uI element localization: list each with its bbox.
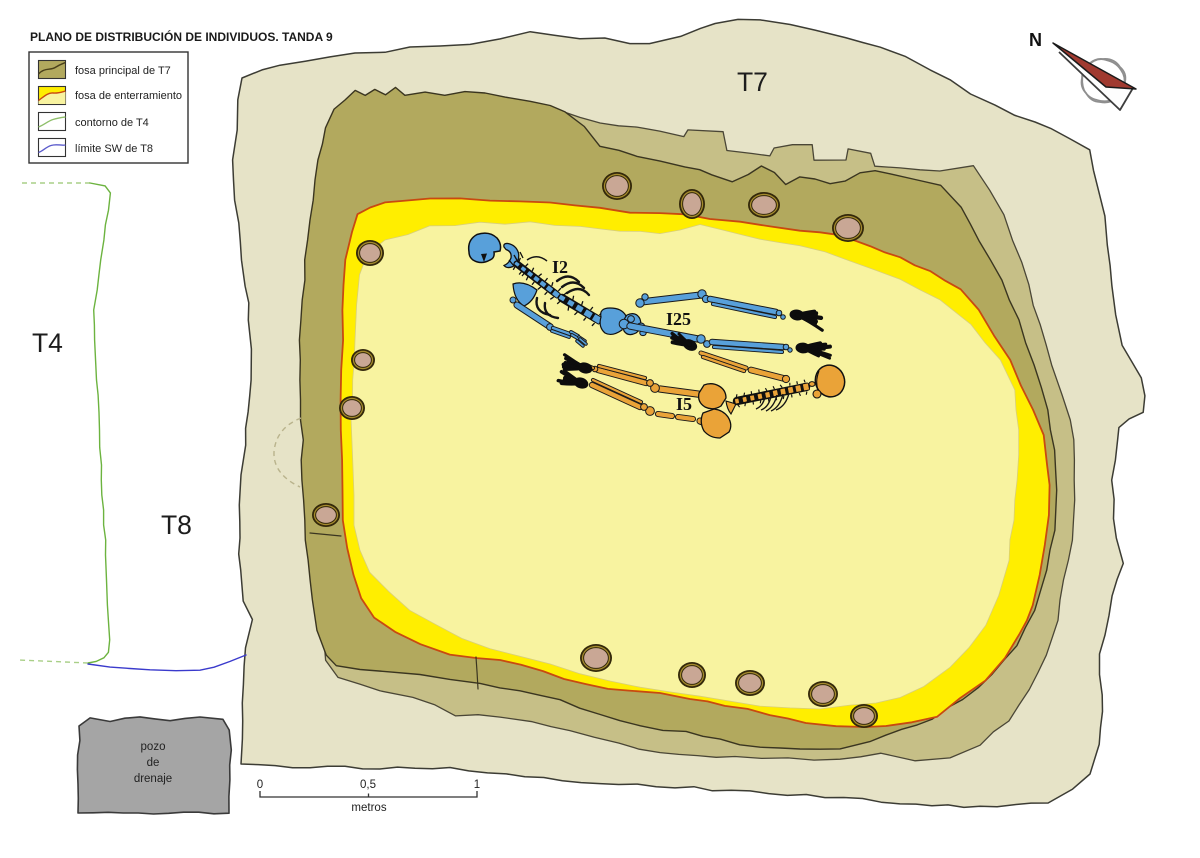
svg-text:N: N	[1029, 30, 1042, 50]
svg-text:de: de	[147, 757, 160, 769]
svg-text:metros: metros	[351, 802, 386, 814]
svg-text:PLANO DE DISTRIBUCIÓN DE INDIV: PLANO DE DISTRIBUCIÓN DE INDIVIDUOS. TAN…	[30, 29, 333, 44]
svg-text:drenaje: drenaje	[134, 773, 172, 785]
svg-text:fosa principal de T7: fosa principal de T7	[75, 65, 171, 77]
svg-text:0: 0	[257, 779, 263, 791]
svg-text:0,5: 0,5	[360, 779, 376, 791]
svg-text:I2: I2	[552, 257, 568, 277]
svg-text:I25: I25	[666, 309, 691, 329]
svg-text:T7: T7	[737, 67, 768, 97]
svg-text:1: 1	[474, 779, 480, 791]
svg-text:I5: I5	[676, 394, 692, 414]
svg-text:contorno de T4: contorno de T4	[75, 117, 149, 129]
svg-text:pozo: pozo	[141, 741, 166, 753]
svg-text:T8: T8	[161, 510, 192, 540]
svg-text:fosa de enterramiento: fosa de enterramiento	[75, 90, 182, 102]
svg-text:límite SW de T8: límite SW de T8	[75, 143, 153, 155]
svg-text:T4: T4	[32, 328, 63, 358]
